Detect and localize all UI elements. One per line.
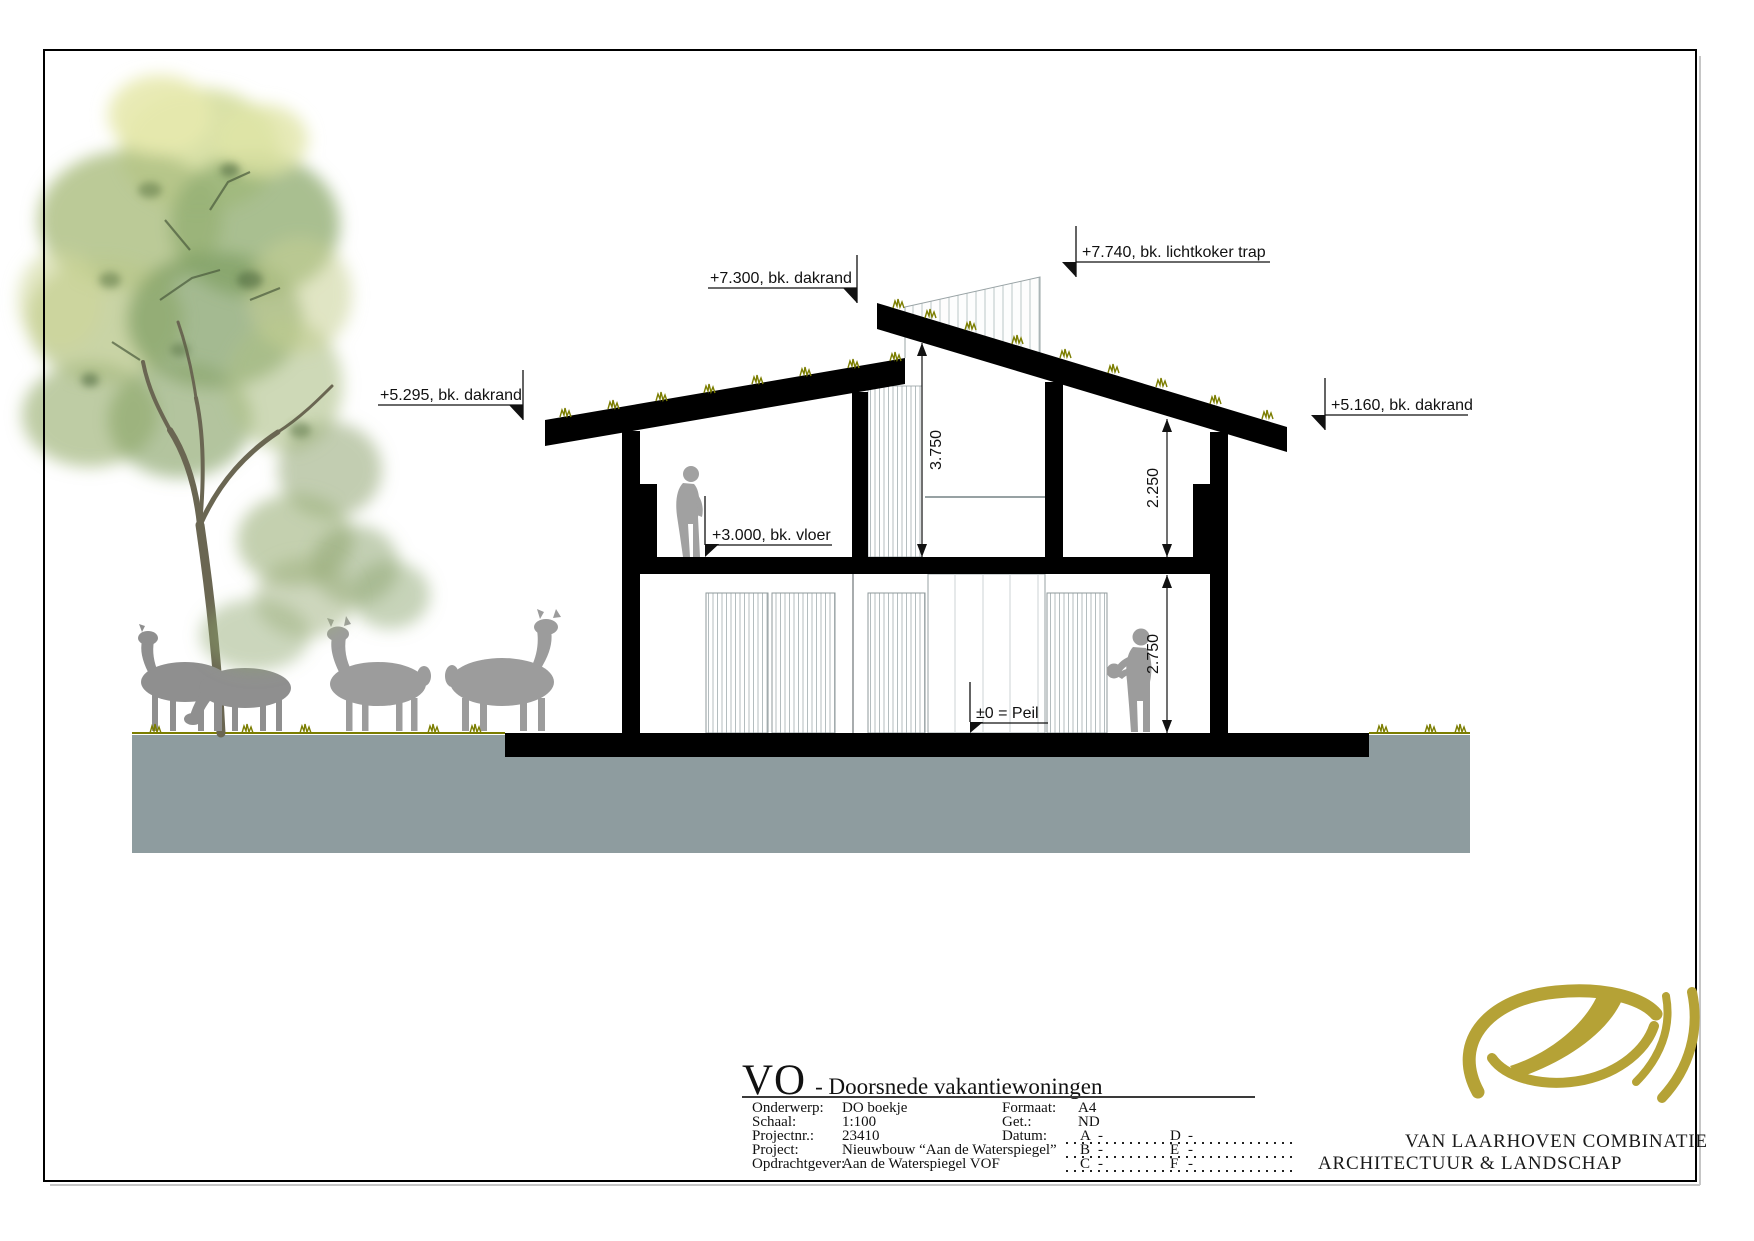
svg-text:+7.300, bk. dakrand: +7.300, bk. dakrand [710,270,852,287]
company-name-line2: ARCHITECTUUR & LANDSCHAP [1318,1153,1622,1175]
svg-text:+5.295, bk. dakrand: +5.295, bk. dakrand [380,387,522,404]
left-knee-wall [640,484,657,557]
alpaca-right [445,609,561,731]
stair-shaft-panel [868,386,922,557]
revision-dash: - [1098,1143,1103,1157]
field-value: ND [1078,1115,1100,1129]
floor-slab [628,557,1222,574]
field-label: Formaat: [1002,1101,1056,1115]
revision-dash: - [1188,1129,1193,1143]
title-row-4: Project: Nieuwbouw “Aan de Waterspiegel”… [742,1143,1302,1157]
field-value: 1:100 [842,1115,876,1129]
field-value: A4 [1078,1101,1096,1115]
right-roof [877,303,1287,452]
dim-upper-floor: 2.250 [1145,419,1172,557]
stair-wall [852,392,868,557]
field-value: 23410 [842,1129,880,1143]
title-row-3: Projectnr.: 23410 Datum: A - D - [742,1129,1302,1143]
title-row-1: Onderwerp: DO boekje Formaat: A4 [742,1101,1302,1115]
revision-dash: - [1188,1157,1193,1171]
revision-letter: E [1170,1143,1179,1157]
svg-text:2.750: 2.750 [1145,634,1162,674]
title-row-2: Schaal: 1:100 Get.: ND [742,1115,1302,1129]
alpaca-middle [327,616,431,731]
field-label: Schaal: [752,1115,796,1129]
revision-letter: A [1080,1129,1091,1143]
right-knee-wall [1193,484,1210,557]
svg-text:3.750: 3.750 [928,430,945,470]
revision-letter: F [1170,1157,1178,1171]
building-section [505,277,1369,757]
field-value: Nieuwbouw “Aan de Waterspiegel” [842,1143,1057,1157]
svg-text:+7.740, bk. lichtkoker trap: +7.740, bk. lichtkoker trap [1082,244,1266,261]
svg-text:±0 = Peil: ±0 = Peil [976,705,1039,722]
marker-dakrand-right: +5.160, bk. dakrand [1311,378,1473,430]
logo-swirl [1469,991,1694,1098]
marker-lichtkoker: +7.740, bk. lichtkoker trap [1062,226,1270,277]
marker-dakrand-mid: +7.300, bk. dakrand [708,255,857,303]
revision-letter: C [1080,1157,1090,1171]
tree-foreground-foliage [200,558,355,671]
field-label: Onderwerp: [752,1101,824,1115]
field-value: DO boekje [842,1101,907,1115]
right-wall [1210,432,1228,733]
revision-letter: D [1170,1129,1181,1143]
person-upper-floor [676,466,702,557]
revision-dash: - [1098,1157,1103,1171]
middle-wall [1045,382,1063,557]
revision-dash: - [1098,1129,1103,1143]
left-wall [622,431,640,733]
field-label: Opdrachtgever: [752,1157,845,1171]
marker-vloer: +3.000, bk. vloer [705,496,832,557]
architectural-section-drawing: 3.750 2.250 2.750 +5.295, bk. dakrand +7… [0,0,1754,1241]
revision-dash: - [1188,1143,1193,1157]
ground-floor-doors [706,574,1107,733]
revision-letter: B [1080,1143,1090,1157]
revision-dotted-line [1066,1170,1296,1172]
left-roof [545,358,905,446]
svg-text:+3.000, bk. vloer: +3.000, bk. vloer [712,527,831,544]
field-label: Datum: [1002,1129,1047,1143]
svg-text:2.250: 2.250 [1145,468,1162,508]
field-label: Get.: [1002,1115,1032,1129]
field-label: Projectnr.: [752,1129,814,1143]
field-label: Project: [752,1143,799,1157]
field-value: Aan de Waterspiegel VOF [842,1157,1000,1171]
title-block-rule [742,1096,1255,1098]
foundation-slab [505,733,1369,757]
marker-dakrand-left: +5.295, bk. dakrand [378,370,523,420]
title-row-5: Opdrachtgever: Aan de Waterspiegel VOF C… [742,1157,1302,1171]
company-name-line1: VAN LAARHOVEN COMBINATIE [1405,1131,1708,1153]
svg-text:+5.160, bk. dakrand: +5.160, bk. dakrand [1331,397,1473,414]
